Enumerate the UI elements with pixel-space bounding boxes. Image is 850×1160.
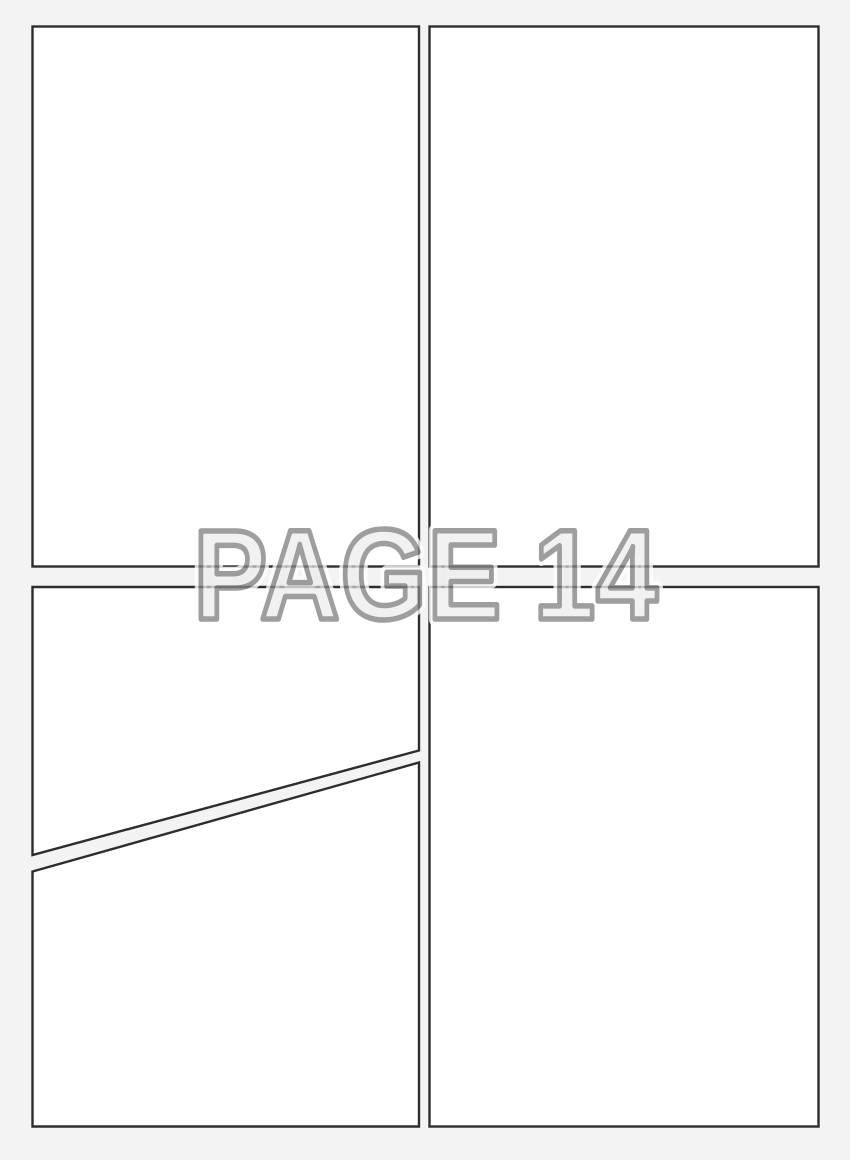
page-label: PAGE 14 [194, 504, 659, 647]
page-label-group: PAGE 14 PAGE 14 [194, 504, 659, 647]
panel-bottom-right [430, 587, 819, 1127]
comic-page-template: PAGE 14 PAGE 14 [0, 0, 850, 1160]
panel-top-left [33, 27, 420, 567]
panel-top-right [430, 27, 819, 567]
